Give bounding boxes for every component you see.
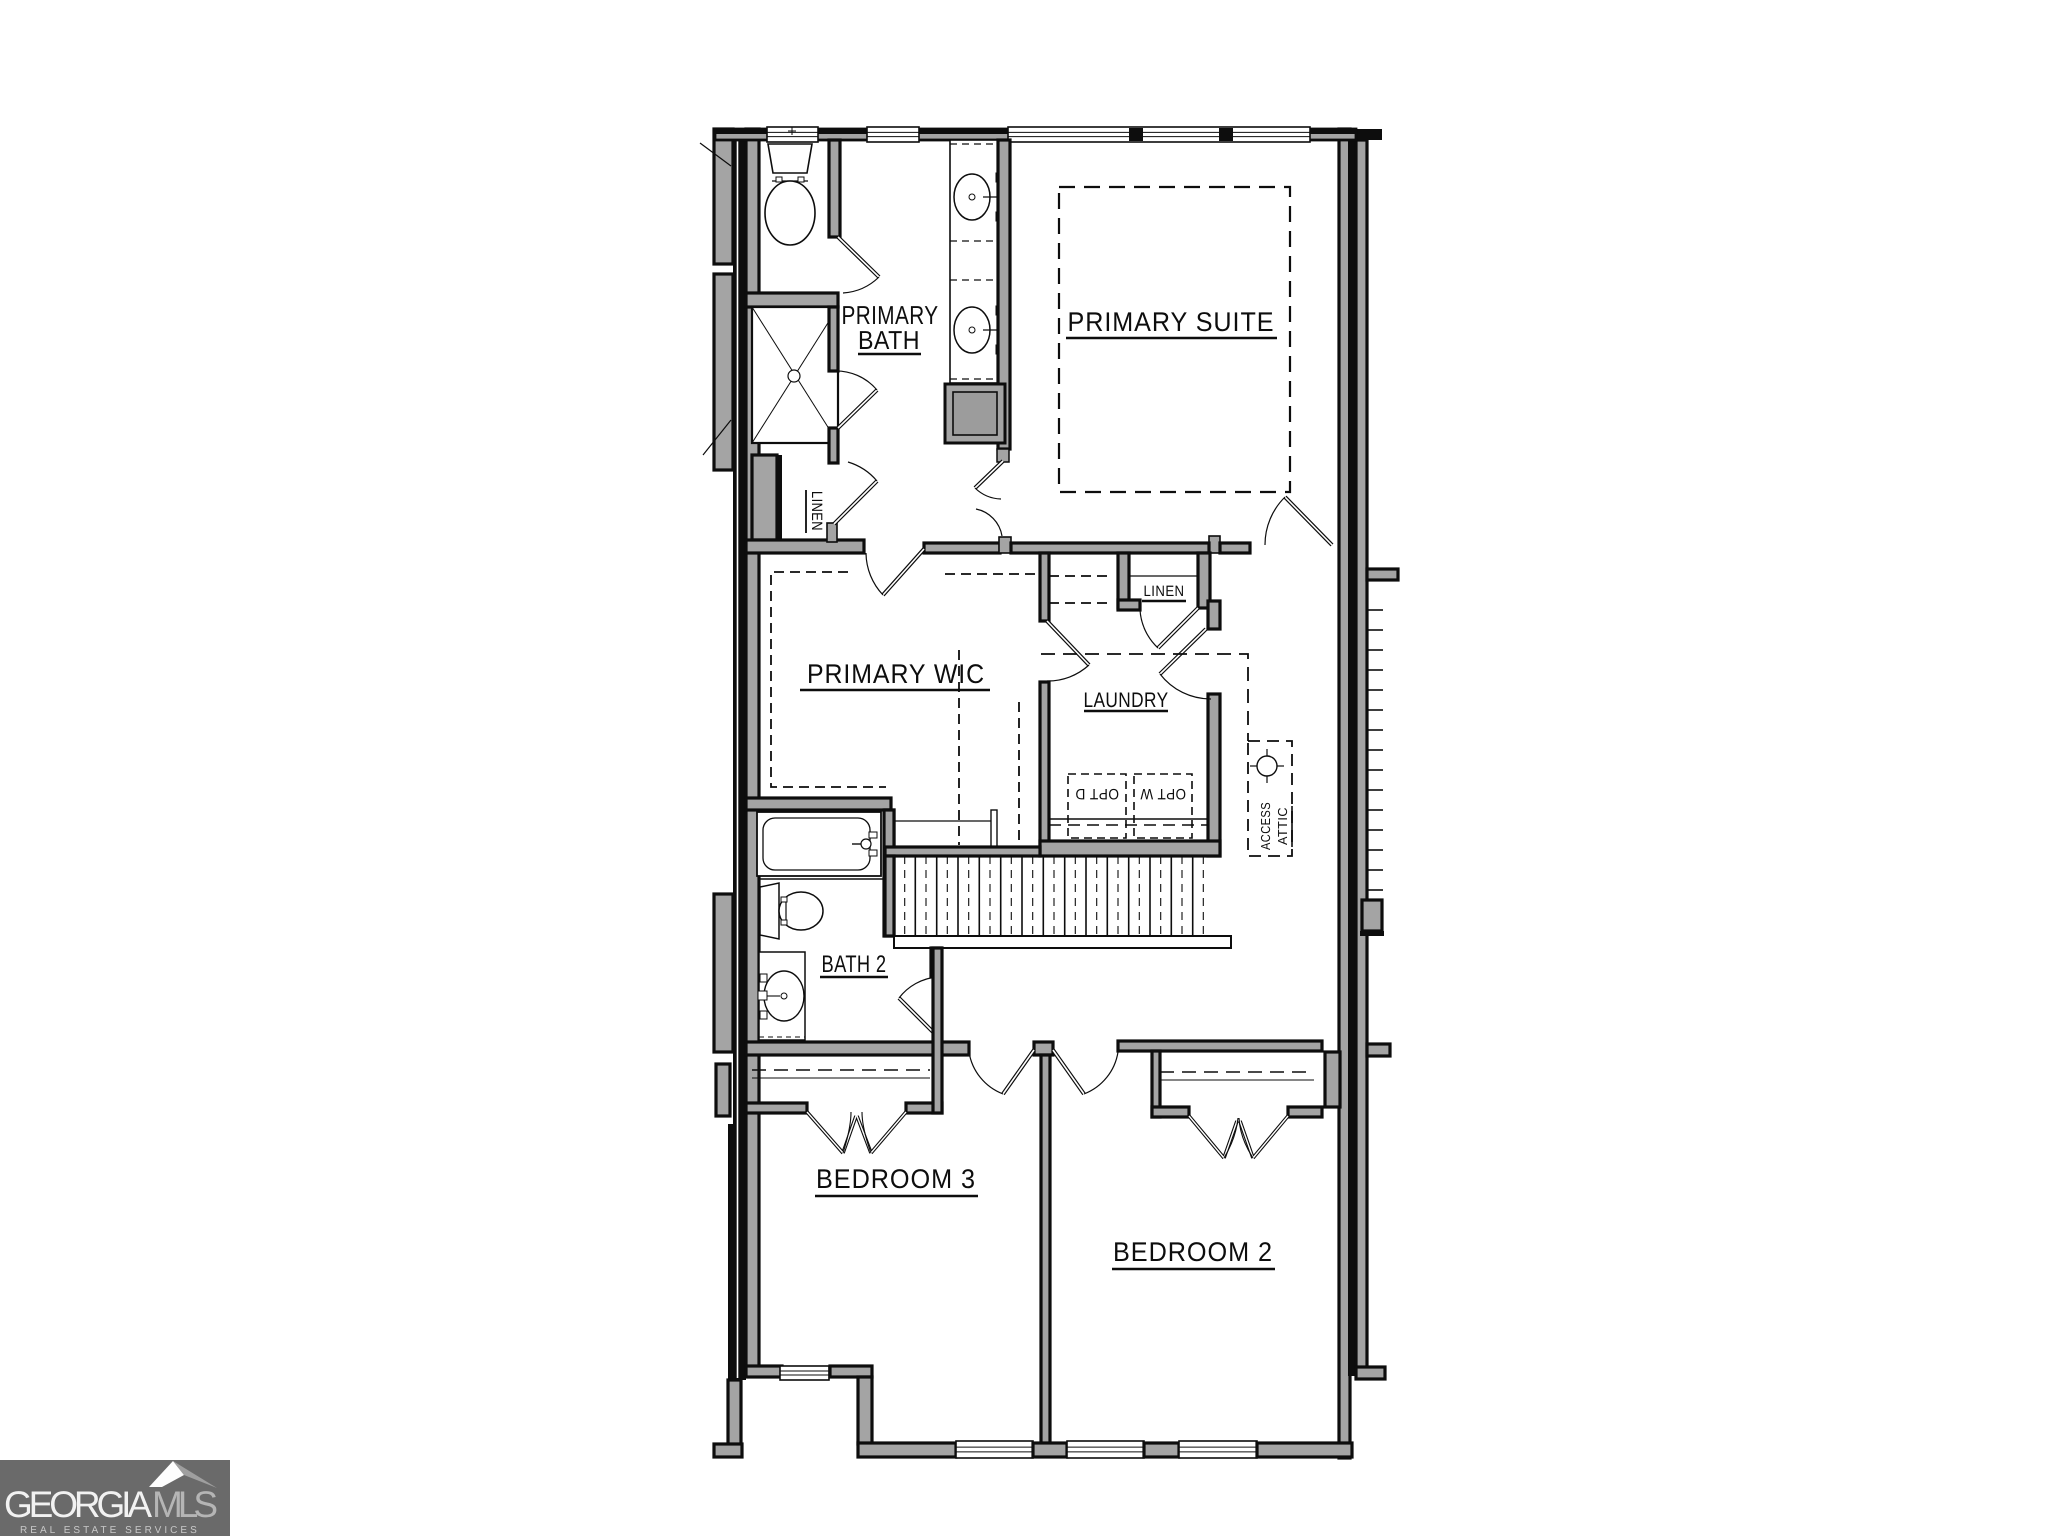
svg-text:BATH 2: BATH 2 — [822, 951, 887, 978]
svg-text:REAL ESTATE SERVICES: REAL ESTATE SERVICES — [20, 1525, 200, 1536]
svg-text:BEDROOM 3: BEDROOM 3 — [816, 1164, 976, 1194]
svg-text:MLS: MLS — [152, 1484, 218, 1525]
svg-text:ACCESS: ACCESS — [1258, 802, 1273, 850]
svg-text:OPT D: OPT D — [1075, 785, 1119, 802]
svg-text:LINEN: LINEN — [1144, 583, 1185, 600]
svg-text:PRIMARY WIC: PRIMARY WIC — [807, 659, 985, 689]
svg-text:BATH: BATH — [858, 325, 920, 355]
svg-text:BEDROOM 2: BEDROOM 2 — [1113, 1237, 1273, 1267]
svg-text:LINEN: LINEN — [808, 491, 825, 531]
svg-text:PRIMARY SUITE: PRIMARY SUITE — [1068, 307, 1275, 337]
svg-text:GEORGIA: GEORGIA — [4, 1484, 152, 1525]
svg-text:ATTIC: ATTIC — [1275, 807, 1290, 845]
svg-text:LAUNDRY: LAUNDRY — [1084, 689, 1169, 712]
svg-text:OPT W: OPT W — [1140, 785, 1186, 802]
